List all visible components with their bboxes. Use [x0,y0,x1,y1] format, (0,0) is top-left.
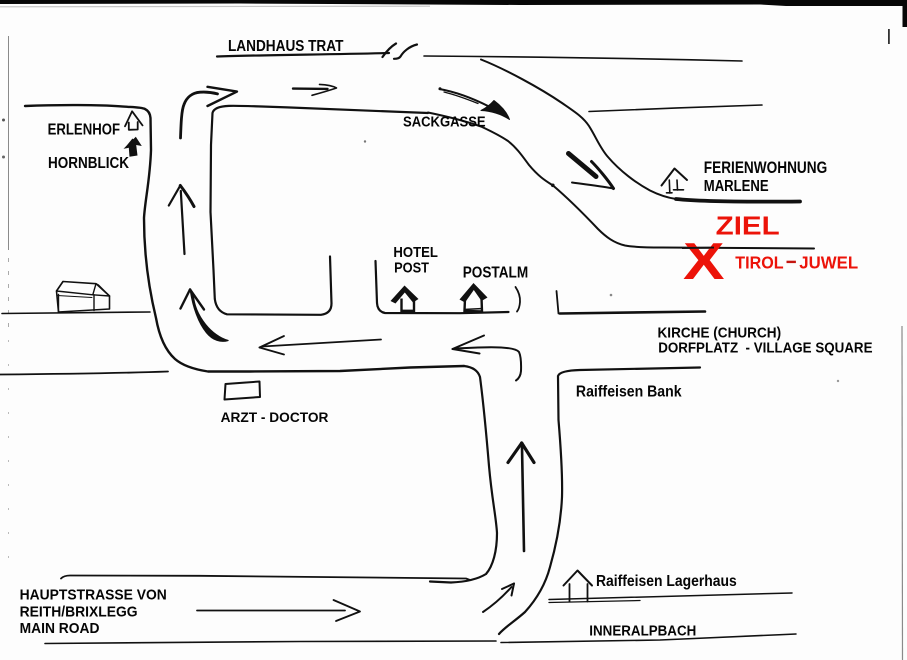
svg-text:REITH/BRIXLEGG: REITH/BRIXLEGG [20,605,138,621]
svg-text:JUWEL: JUWEL [799,253,858,273]
svg-text:X: X [683,233,725,291]
svg-text:SACKGASSE: SACKGASSE [403,114,486,131]
svg-text:LANDHAUS TRAT: LANDHAUS TRAT [228,38,344,55]
svg-text:POST: POST [394,261,429,277]
svg-text:ZIEL: ZIEL [716,212,780,240]
svg-text:Raiffeisen Lagerhaus: Raiffeisen Lagerhaus [596,573,737,590]
svg-text:KIRCHE (CHURCH): KIRCHE (CHURCH) [658,325,782,341]
svg-text:MARLENE: MARLENE [704,178,769,195]
svg-text:HORNBLICK: HORNBLICK [48,155,129,172]
svg-text:ARZT - DOCTOR: ARZT - DOCTOR [221,410,329,426]
svg-text:HAUPTSTRASSE VON: HAUPTSTRASSE VON [20,588,167,604]
svg-text:DORFPLATZ - VILLAGE SQUARE: DORFPLATZ - VILLAGE SQUARE [658,341,873,357]
svg-text:ERLENHOF: ERLENHOF [48,122,121,139]
svg-text:FERIENWOHNUNG: FERIENWOHNUNG [704,159,827,177]
svg-text:Raiffeisen Bank: Raiffeisen Bank [576,383,682,400]
svg-text:TIROL: TIROL [735,253,784,273]
svg-text:INNERALPBACH: INNERALPBACH [589,624,696,640]
svg-text:HOTEL: HOTEL [393,245,438,261]
svg-text:MAIN ROAD: MAIN ROAD [20,621,100,637]
svg-text:POSTALM: POSTALM [463,264,529,281]
